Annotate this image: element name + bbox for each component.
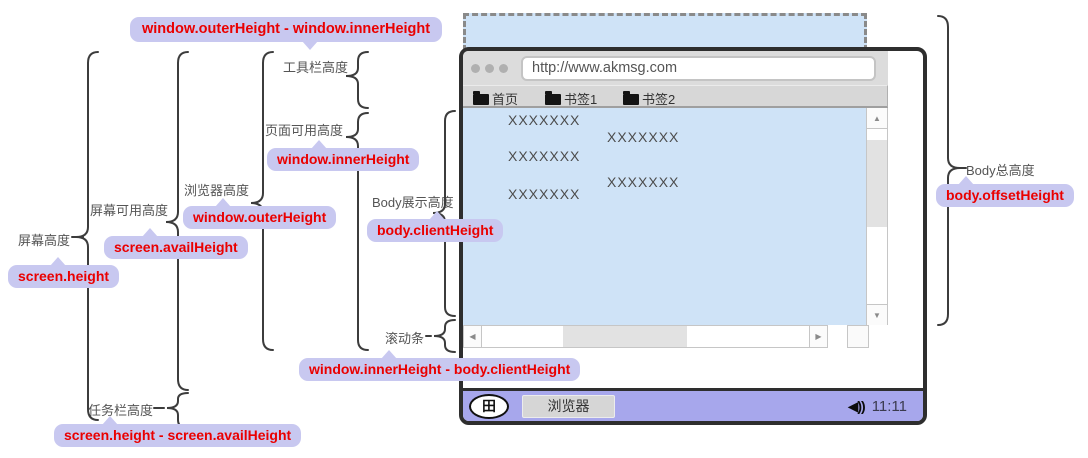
- label-toolbar-height: 工具栏高度: [283, 57, 348, 76]
- content-text: XXXXXXX: [508, 186, 580, 202]
- page-body: XXXXXXX XXXXXXX XXXXXXX XXXXXXX XXXXXXX: [463, 108, 866, 325]
- content-text: XXXXXXX: [508, 148, 580, 164]
- bubble-pointer: [302, 41, 318, 50]
- brace-toolbar-height: [346, 52, 368, 108]
- bookmark-2[interactable]: 书签2: [623, 89, 675, 108]
- brace-body-total-height: [938, 16, 960, 325]
- bubble-text: window.innerHeight: [277, 151, 409, 167]
- bubble-taskbar-diff: screen.height - screen.availHeight: [54, 424, 301, 447]
- bubble-text: body.clientHeight: [377, 222, 493, 238]
- label-body-total: Body总高度: [966, 160, 1035, 179]
- bubble-pointer: [958, 176, 974, 185]
- scroll-left-icon[interactable]: ◀: [463, 325, 482, 348]
- brace-screen-height: [76, 52, 98, 420]
- bubble-pointer: [311, 140, 327, 149]
- label-screen-height: 屏幕高度: [18, 230, 70, 249]
- brace-taskbar-height: [167, 393, 188, 428]
- bubble-window-outer: window.outerHeight: [183, 206, 336, 229]
- bubble-pointer: [381, 350, 397, 359]
- window-control-icon[interactable]: [499, 64, 508, 73]
- bubble-screen-avail: screen.availHeight: [104, 236, 248, 259]
- bookmark-1[interactable]: 书签1: [545, 89, 597, 108]
- horizontal-scroll-track[interactable]: [482, 325, 809, 348]
- bubble-pointer: [142, 228, 158, 237]
- bubble-text: screen.height - screen.availHeight: [64, 427, 291, 443]
- bubble-window-inner: window.innerHeight: [267, 148, 419, 171]
- bookmark-home[interactable]: 首页: [473, 89, 518, 108]
- bubble-scrollbar-diff: window.innerHeight - body.clientHeight: [299, 358, 580, 381]
- bubble-text: screen.height: [18, 268, 109, 284]
- brace-scrollbar: [434, 320, 455, 352]
- bubble-pointer: [50, 257, 66, 266]
- scroll-up-icon[interactable]: ▲: [867, 108, 887, 129]
- bookmark-label: 书签1: [564, 89, 597, 108]
- bubble-body-client: body.clientHeight: [367, 219, 503, 242]
- viewport: XXXXXXX XXXXXXX XXXXXXX XXXXXXX XXXXXXX …: [463, 108, 923, 325]
- bubble-pointer: [215, 198, 231, 207]
- scroll-right-icon[interactable]: ▶: [809, 325, 828, 348]
- folder-icon: [545, 94, 561, 105]
- content-text: XXXXXXX: [607, 174, 679, 190]
- content-text: XXXXXXX: [508, 112, 580, 128]
- bubble-body-offset: body.offsetHeight: [936, 184, 1074, 207]
- window-control-icon[interactable]: [485, 64, 494, 73]
- vertical-scrollbar[interactable]: ▲ ▼: [866, 108, 888, 325]
- bubble-text: window.innerHeight - body.clientHeight: [309, 361, 570, 377]
- window-control-icon[interactable]: [471, 64, 480, 73]
- folder-icon: [473, 94, 489, 105]
- taskbar-clock: 11:11: [872, 398, 907, 415]
- bubble-text: window.outerHeight: [193, 209, 326, 225]
- label-scrollbar: 滚动条: [385, 328, 424, 347]
- scroll-down-icon[interactable]: ▼: [867, 304, 887, 325]
- url-input[interactable]: http://www.akmsg.com: [521, 56, 876, 81]
- url-bar: http://www.akmsg.com: [463, 51, 888, 85]
- folder-icon: [623, 94, 639, 105]
- brace-browser-height: [251, 52, 273, 350]
- taskbar-app-button[interactable]: 浏览器: [522, 395, 615, 418]
- horizontal-scroll-thumb[interactable]: [563, 326, 687, 347]
- horizontal-scrollbar[interactable]: ◀ ▶: [463, 325, 910, 348]
- content-text: XXXXXXX: [607, 129, 679, 145]
- taskbar: 田 浏览器 ◀)) 11:11: [463, 388, 923, 421]
- bubble-pointer: [102, 416, 118, 425]
- label-page-avail: 页面可用高度: [265, 120, 343, 139]
- bookmark-label: 书签2: [642, 89, 675, 108]
- speaker-icon[interactable]: ◀)): [848, 398, 865, 415]
- vertical-scroll-thumb[interactable]: [867, 140, 887, 227]
- bubble-text: body.offsetHeight: [946, 187, 1064, 203]
- bubble-screen-height: screen.height: [8, 265, 119, 288]
- label-taskbar-height: 任务栏高度: [88, 400, 153, 419]
- bubble-pointer: [429, 211, 445, 220]
- body-overflow-dashed-rect: [463, 13, 867, 51]
- label-body-display: Body展示高度: [372, 192, 454, 211]
- start-button[interactable]: 田: [469, 394, 509, 419]
- label-browser-height: 浏览器高度: [184, 180, 249, 199]
- start-icon: 田: [482, 396, 496, 416]
- bubble-toolbar-diff: window.outerHeight - window.innerHeight: [130, 17, 442, 42]
- label-screen-avail: 屏幕可用高度: [90, 200, 168, 219]
- bubble-text: window.outerHeight - window.innerHeight: [142, 21, 430, 37]
- bookmark-label: 首页: [492, 89, 518, 108]
- bubble-text: screen.availHeight: [114, 239, 238, 255]
- scrollbar-corner: [847, 325, 869, 348]
- bookmarks-bar: 首页 书签1 书签2: [463, 85, 888, 108]
